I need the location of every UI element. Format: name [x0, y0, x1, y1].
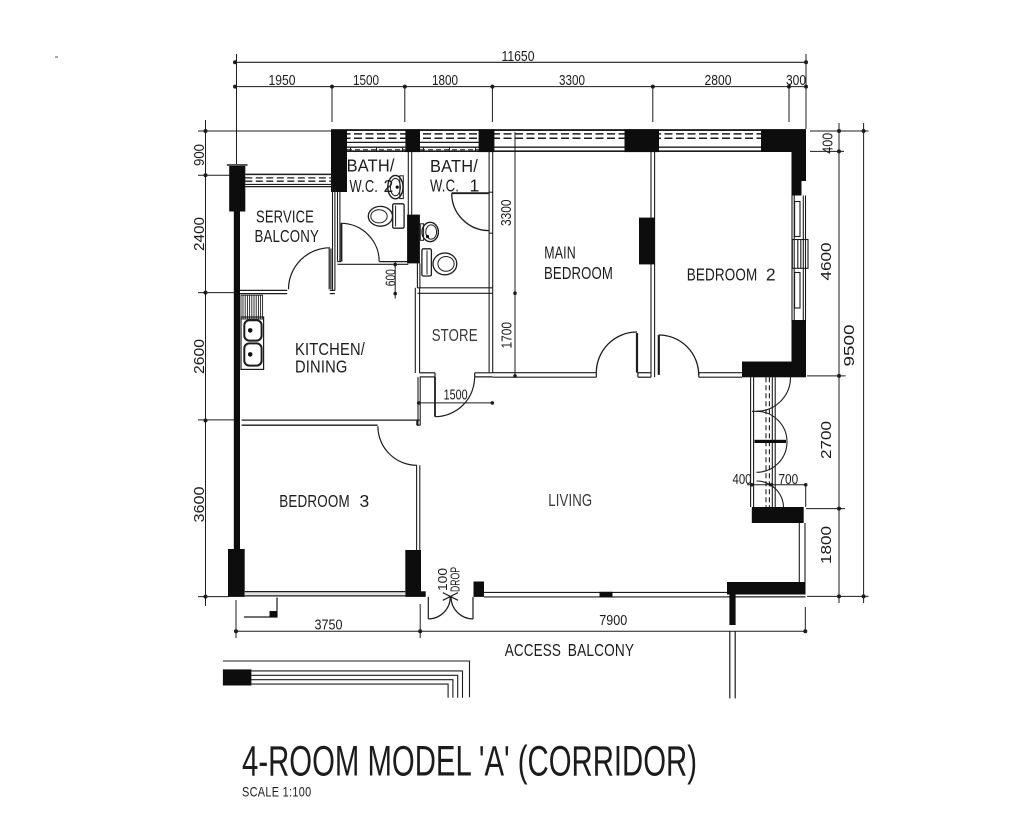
svg-text:3750: 3750: [315, 618, 343, 634]
svg-text:ACCESS: ACCESS: [505, 640, 561, 660]
svg-text:400: 400: [821, 133, 837, 154]
svg-text:SERVICE: SERVICE: [256, 207, 314, 227]
svg-text:400: 400: [733, 472, 752, 488]
svg-text:4-ROOM MODEL 'A' (CORRIDOR): 4-ROOM MODEL 'A' (CORRIDOR): [242, 738, 697, 785]
svg-text:1500: 1500: [444, 388, 468, 404]
svg-text:3300: 3300: [499, 199, 515, 226]
svg-text:BATH/: BATH/: [347, 155, 395, 175]
svg-text:DROP: DROP: [448, 567, 463, 592]
svg-text:2400: 2400: [192, 217, 208, 251]
svg-text:3: 3: [360, 491, 370, 511]
svg-text:BATH/: BATH/: [430, 156, 478, 176]
svg-text:BEDROOM: BEDROOM: [687, 264, 758, 284]
svg-text:W.C.: W.C.: [350, 176, 379, 196]
svg-text:2700: 2700: [819, 421, 835, 459]
svg-text:2: 2: [384, 176, 394, 196]
svg-text:2800: 2800: [705, 73, 732, 89]
svg-text:1800: 1800: [432, 73, 458, 89]
svg-text:1800: 1800: [819, 526, 835, 564]
svg-text:SCALE 1:100: SCALE 1:100: [242, 784, 312, 800]
svg-text:1500: 1500: [353, 73, 379, 89]
svg-text:700: 700: [778, 472, 798, 488]
svg-text:3300: 3300: [559, 73, 585, 89]
svg-text:BALCONY: BALCONY: [568, 640, 634, 660]
svg-text:1700: 1700: [500, 322, 516, 349]
svg-text:BEDROOM: BEDROOM: [279, 491, 350, 511]
svg-text:3600: 3600: [192, 487, 208, 523]
svg-text:2: 2: [766, 264, 776, 284]
svg-text:7900: 7900: [599, 613, 627, 629]
svg-text:STORE: STORE: [432, 325, 478, 345]
svg-text:MAIN: MAIN: [544, 243, 576, 263]
svg-text:2600: 2600: [192, 339, 208, 374]
svg-text:11650: 11650: [502, 49, 535, 65]
svg-text:LIVING: LIVING: [548, 490, 592, 510]
svg-text:W.C.: W.C.: [430, 176, 459, 196]
svg-text:600: 600: [384, 269, 400, 286]
svg-text:9500: 9500: [842, 325, 858, 367]
svg-text:DINING: DINING: [295, 356, 348, 376]
svg-text:BEDROOM: BEDROOM: [544, 263, 613, 283]
svg-text:BALCONY: BALCONY: [255, 226, 320, 246]
svg-text:1950: 1950: [269, 73, 296, 89]
svg-text:900: 900: [192, 144, 208, 166]
svg-text:1: 1: [470, 176, 480, 196]
svg-text:4600: 4600: [819, 243, 835, 281]
svg-text:300: 300: [786, 73, 806, 89]
